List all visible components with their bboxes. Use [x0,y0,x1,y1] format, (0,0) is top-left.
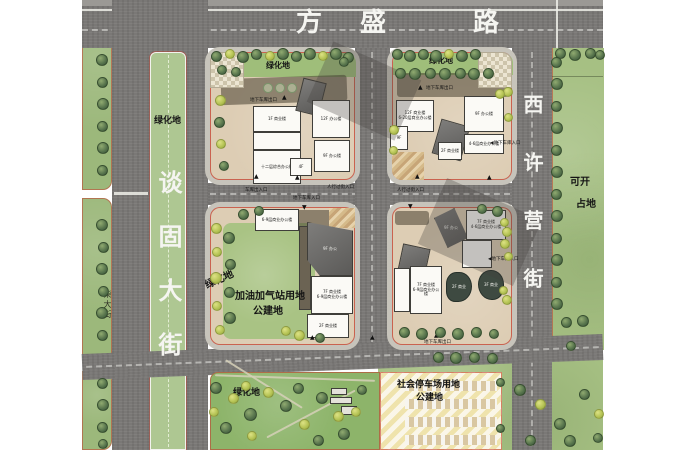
garage-entry-arrow-label: ◀地下车库入口 [490,142,520,147]
tree-icon [452,328,464,340]
tree-icon [502,295,512,305]
tree-icon [281,326,291,336]
tree-icon [97,330,108,341]
entrance-triangle-icon: ▲ [418,85,423,91]
tree-icon [564,435,576,447]
tree-icon [318,51,328,61]
paved-court [329,208,355,228]
tree-icon [439,68,451,80]
tree-icon [231,67,241,77]
tree-icon [217,65,227,75]
building-label: 12F 办公楼 [321,117,342,122]
garage-entry-arrow-label: ◀地下车库入口 [488,258,518,263]
tree-icon [315,333,325,343]
tree-icon [338,428,350,440]
tree-icon [551,254,563,266]
entrance-triangle-icon: ▼ [408,204,413,210]
ramp-structure [331,388,347,395]
entrance-triangle-icon: ▼ [302,205,307,211]
tree-icon [280,400,292,412]
tree-icon [495,89,505,99]
building: 2F 商业楼 [438,142,462,160]
tree-icon [97,142,109,154]
tree-icon [551,277,562,288]
building: 7F 商业楼 6-9层商业办公楼 [311,276,353,314]
tree-icon [399,327,410,338]
parking-area-label: 公建地 [416,394,443,403]
tree-icon [471,327,482,338]
tree-icon [241,381,251,391]
tree-icon [287,83,297,93]
tree-icon [96,54,108,66]
tree-icon [97,422,108,433]
tree-icon [215,325,225,335]
planting-shadow-band [395,211,429,225]
tree-icon [430,50,442,62]
entrance-triangle-icon: ▲ [310,335,315,341]
tree-icon [470,49,481,60]
tree-icon [468,68,480,80]
building-label: 9F 办公楼 [475,112,493,117]
tree-icon [409,68,421,80]
road-name-fangsheng: 盛 [360,10,386,36]
tree-icon [477,204,487,214]
green-land-label: 绿化地 [266,62,290,70]
stop-bar [114,192,148,195]
tree-icon [316,392,328,404]
ramp-structure [330,397,352,404]
tree-icon [263,83,273,93]
tree-icon [211,223,222,234]
tree-icon [210,272,222,284]
tree-icon [244,408,257,421]
tree-icon [551,145,562,156]
tree-icon [333,411,344,422]
tree-icon [525,435,536,446]
building-label: 6-9层商业办公楼 [317,295,348,300]
parking-area-label: 社会停车场用地 [397,381,460,390]
building-label: 十二层综合办公楼 [261,165,293,170]
lane-line [556,0,558,48]
tree-icon [293,383,304,394]
gas-station-label: 公建地 [253,307,283,317]
tree-icon [551,101,562,112]
tree-icon [489,329,499,339]
tree-icon [97,165,108,176]
tree-icon [504,252,513,261]
pedestrian-entry-label: 人行过街入口 [327,186,354,191]
tree-icon [212,301,222,311]
feature-label: 3F 商业 [484,282,498,288]
tree-icon [499,286,508,295]
garage-access-label: 车库出入口 [245,189,268,194]
building-label: 1F 商业楼 [268,117,286,122]
building-label: 2F 商业楼 [441,149,459,154]
tree-icon [351,407,361,417]
building [253,132,301,150]
road-name-xixuying: 西许营街 [522,94,542,326]
tree-icon [395,68,406,79]
tree-icon [435,327,446,338]
road-name-tangu: 谈固大街 [156,170,180,386]
tree-icon [585,48,596,59]
tree-icon [551,233,562,244]
tree-icon [97,77,108,88]
tree-icon [224,287,235,298]
tree-icon [224,312,236,324]
tree-icon [212,247,222,257]
road-name-fangsheng: 方 [296,10,322,36]
tree-icon [492,206,503,217]
tree-icon [304,48,316,60]
field-boundary-line [552,76,603,77]
tree-icon [504,113,513,122]
roof-label: 9F 办公 [323,247,337,252]
tree-icon [433,352,444,363]
building-label: 2F 商业楼 [319,324,337,329]
entrance-triangle-icon: ▲ [254,174,259,180]
tree-icon [211,51,222,62]
tree-icon [551,166,563,178]
development-field-label: 占地 [576,200,596,210]
tree-icon [265,51,275,61]
tree-icon [313,435,324,446]
tree-icon [254,206,264,216]
tree-icon [496,424,505,433]
tree-icon [97,121,108,132]
tree-icon [214,117,225,128]
tree-icon [487,353,498,364]
tree-icon [216,139,226,149]
tree-icon [450,352,462,364]
tree-icon [98,286,109,297]
tree-icon [455,68,466,79]
tree-icon [551,298,563,310]
entrance-triangle-icon: ▲ [370,335,375,341]
tree-icon [569,49,581,61]
tree-icon [210,382,222,394]
tree-icon [416,328,428,340]
tree-icon [551,189,562,200]
building: 9F 办公楼 [464,96,504,132]
tree-icon [209,407,219,417]
building: 9F 办公楼 [314,140,350,172]
tree-icon [97,378,108,389]
tree-icon [444,49,454,59]
tree-icon [469,352,480,363]
tree-icon [228,393,239,404]
garage-exit-label: 地下车库出口 [426,87,453,92]
tree-icon [554,418,566,430]
tree-icon [247,431,257,441]
tree-icon [339,57,349,67]
tree-icon [97,98,109,110]
tree-icon [392,49,403,60]
building: 7F 商业楼 6-9层商业办公楼 [410,266,442,314]
gas-station-label: 加油加气站用地 [235,292,305,302]
tree-icon [389,146,398,155]
tree-icon [357,385,367,395]
tree-icon [566,341,576,351]
building: 4F [290,158,312,176]
road-name-fangsheng: 路 [473,10,499,36]
master-plan-map: 1F 商业楼 十二层综合办公楼 12F 办公楼 9F 办公楼 4F 12F 商业… [0,0,700,450]
tree-icon [220,422,232,434]
tree-icon [551,78,563,90]
tree-icon [535,399,546,410]
tree-icon [500,218,509,227]
garage-exit-label: 地下车库出口 [250,99,277,104]
tree-icon [551,57,562,68]
tree-icon [594,409,604,419]
tree-icon [219,161,229,171]
tower-roof: 9F 办公 [307,222,353,276]
tree-icon [483,68,494,79]
tree-icon [294,330,305,341]
tree-icon [551,122,563,134]
tree-icon [223,232,235,244]
tree-icon [215,95,226,106]
building [394,268,410,312]
tree-icon [275,83,285,93]
tree-icon [277,48,289,60]
entrance-triangle-icon: ▲ [415,174,420,180]
entrance-triangle-icon: ▲ [295,175,300,181]
tree-icon [238,209,249,220]
tree-icon [263,387,274,398]
tree-icon [251,49,262,60]
tree-icon [97,399,109,411]
park-path [215,374,375,382]
tree-icon [389,125,399,135]
tree-icon [577,315,589,327]
tree-icon [595,50,605,60]
tree-icon [425,68,436,79]
tree-icon [579,389,590,400]
development-field-label: 可开 [570,178,590,188]
tree-icon [496,378,505,387]
tree-icon [502,227,512,237]
feature-label: 2F 商业 [452,284,466,290]
parking-row [405,435,497,445]
tree-icon [593,433,603,443]
tree-icon [96,219,108,231]
tree-icon [456,50,468,62]
building: 1F 商业楼 [253,106,301,132]
building-label: 9F 办公楼 [323,154,341,159]
tree-icon [225,259,236,270]
tree-icon [551,210,563,222]
tree-icon [98,242,109,253]
tree-icon [237,51,249,63]
building-label: 9F [397,136,402,141]
pedestrian-entry-label: 人行过街入口 [397,189,424,194]
building-label: 6-9层商业办公楼 [411,288,441,298]
tree-icon [514,384,526,396]
tree-icon [96,263,108,275]
garage-exit-label: 地下车库出口 [424,341,451,346]
tree-icon [225,49,235,59]
parking-row [405,417,497,427]
tree-icon [98,439,108,449]
entrance-triangle-icon: ▲ [282,95,287,101]
building-label: 4F [299,165,304,170]
tree-icon [404,50,416,62]
tree-icon [500,239,510,249]
tree-icon [291,51,302,62]
entrance-triangle-icon: ▲ [487,175,492,181]
green-land-label: 绿化地 [154,117,181,126]
building-label: 6-9层商业办公楼 [262,218,293,223]
tree-icon [299,419,310,430]
tree-icon [96,307,108,319]
tree-icon [418,49,429,60]
garage-entry-label: 地下车库入口 [293,197,320,202]
tree-icon [561,317,572,328]
